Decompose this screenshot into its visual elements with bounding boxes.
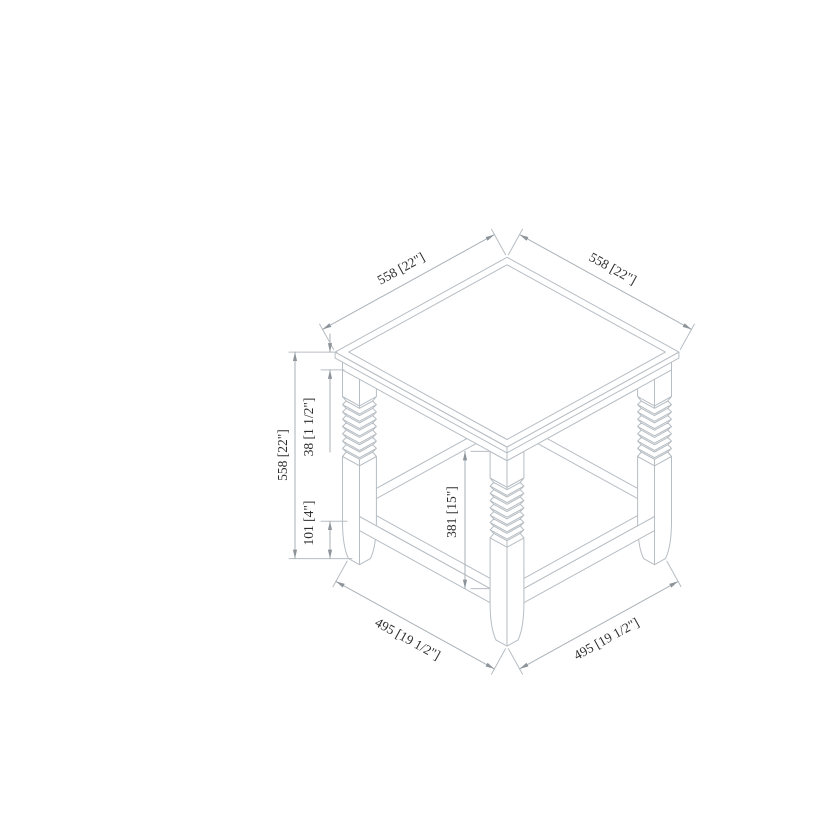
dim-label-overall-height: 558 [22"]	[275, 429, 290, 481]
dim-base-depth-line	[520, 581, 679, 669]
dim-label-top-thickness: 38 [1 1/2"]	[301, 398, 316, 457]
tabletop-top-face	[335, 257, 679, 447]
dim-label-base-width: 495 [19 1/2"]	[373, 615, 443, 663]
technical-drawing-svg: 558 [22"] 558 [22"] 558 [22"] 38 [1 1/2"…	[0, 0, 840, 840]
front-leg	[490, 451, 524, 646]
tabletop	[335, 257, 679, 453]
dim-label-top-width: 558 [22"]	[375, 249, 427, 287]
canvas: 558 [22"] 558 [22"] 558 [22"] 38 [1 1/2"…	[0, 0, 840, 840]
dim-base-width-line	[336, 581, 495, 669]
dim-shelf-underside: 101 [4"]	[301, 501, 347, 559]
dim-label-shelf-underside: 101 [4"]	[301, 501, 316, 546]
dim-label-top-depth: 558 [22"]	[587, 249, 639, 287]
table-drawing	[335, 257, 679, 646]
dim-label-base-depth: 495 [19 1/2"]	[571, 615, 641, 663]
dim-label-shelf-clearance: 381 [15"]	[444, 486, 459, 538]
